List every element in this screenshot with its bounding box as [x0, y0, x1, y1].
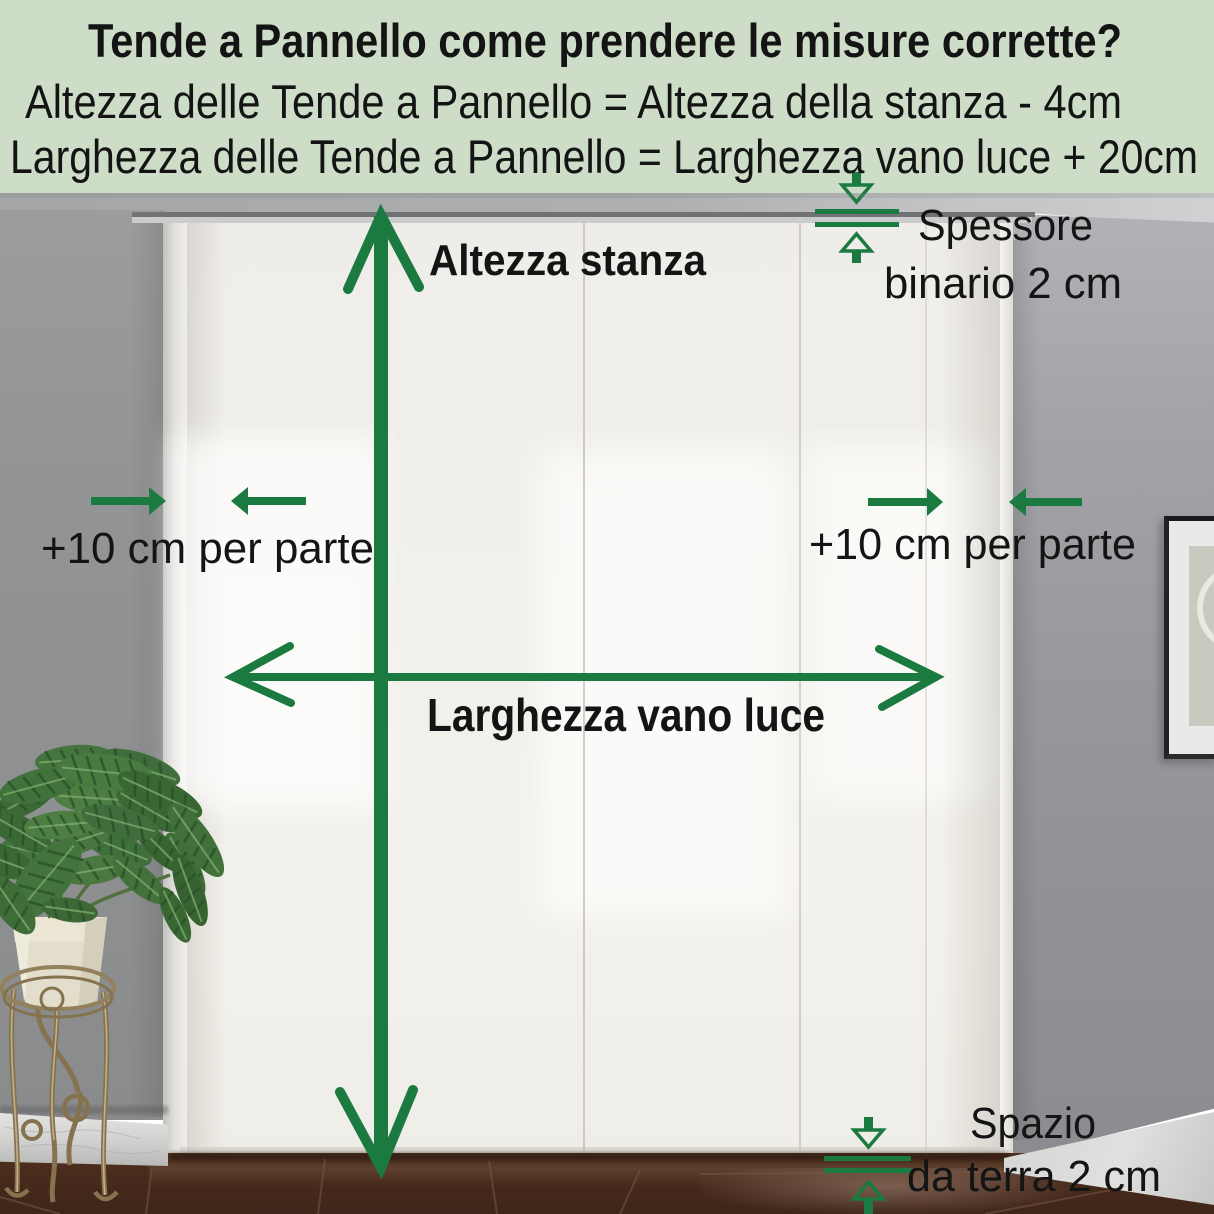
svg-text:Spazio: Spazio	[970, 1099, 1096, 1148]
svg-text:Altezza delle Tende a Pannello: Altezza delle Tende a Pannello = Altezza…	[25, 75, 1122, 128]
svg-text:+10 cm per parte: +10 cm per parte	[41, 524, 374, 573]
svg-text:Tende a Pannello come prendere: Tende a Pannello come prendere le misure…	[88, 14, 1122, 67]
svg-text:Larghezza vano luce: Larghezza vano luce	[427, 689, 825, 741]
svg-text:binario 2 cm: binario 2 cm	[884, 259, 1122, 308]
svg-text:Altezza stanza: Altezza stanza	[429, 236, 706, 285]
svg-text:+10 cm per parte: +10 cm per parte	[809, 520, 1136, 569]
svg-text:Larghezza delle Tende a Pannel: Larghezza delle Tende a Pannello = Largh…	[10, 130, 1198, 183]
svg-text:Spessore: Spessore	[918, 201, 1093, 250]
svg-text:da terra 2 cm: da terra 2 cm	[907, 1152, 1161, 1201]
